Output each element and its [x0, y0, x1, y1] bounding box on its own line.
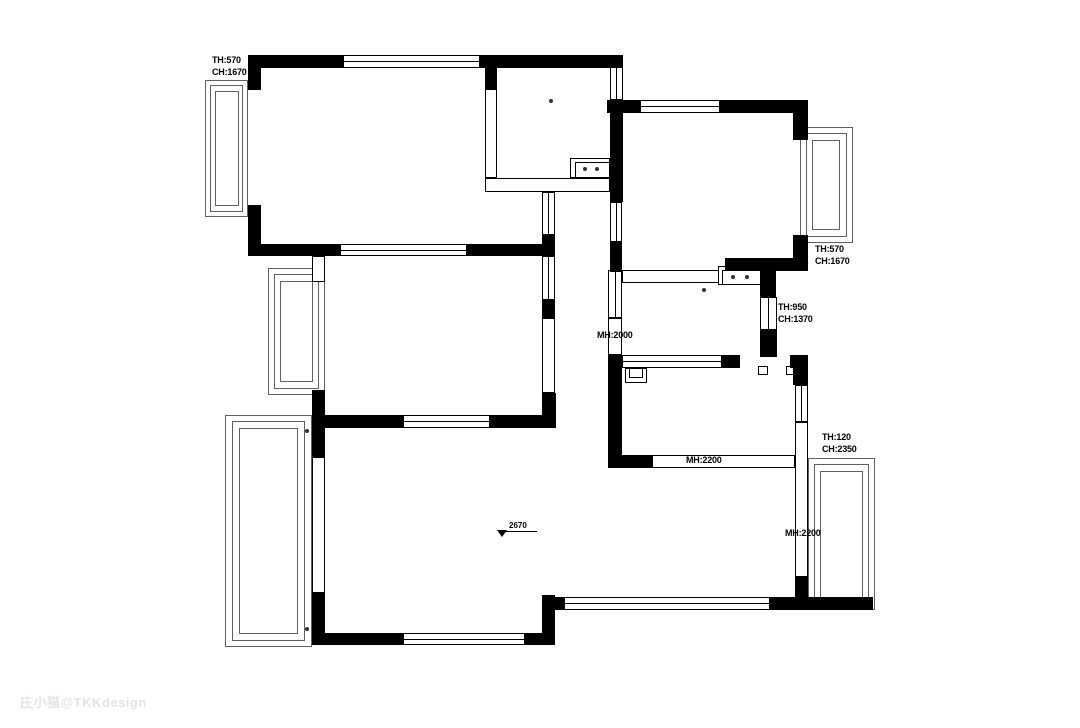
partition-outline	[312, 457, 325, 593]
wall-segment	[608, 455, 652, 468]
wall-segment	[607, 100, 640, 113]
window-segment	[622, 355, 722, 368]
level-marker-line	[501, 531, 537, 532]
window-segment	[608, 270, 622, 318]
wall-segment	[790, 355, 808, 368]
window-segment	[640, 100, 720, 113]
wall-segment	[610, 242, 622, 272]
partition-outline	[652, 455, 795, 468]
wall-segment	[312, 390, 325, 457]
wall-segment	[793, 100, 808, 140]
wall-segment	[552, 597, 565, 610]
dot-marker	[595, 167, 599, 171]
bay-window-frame	[215, 91, 239, 206]
bay-window-frame	[280, 281, 313, 382]
wall-segment	[322, 415, 403, 428]
dimension-label: TH:570CH:1670	[815, 244, 850, 267]
wall-segment	[760, 270, 776, 297]
window-segment	[340, 244, 467, 256]
dimension-label: MH:2200	[686, 455, 722, 467]
window-segment	[795, 385, 808, 422]
dimension-label: TH:570CH:1670	[212, 55, 247, 78]
window-segment	[760, 297, 777, 330]
wall-segment	[248, 55, 261, 90]
wall-segment	[248, 55, 343, 68]
window-segment	[343, 55, 480, 68]
window-segment	[403, 415, 490, 428]
window-segment	[403, 633, 525, 645]
window-segment	[542, 192, 555, 235]
window-segment	[563, 597, 770, 610]
dot-marker	[731, 275, 735, 279]
wall-segment	[608, 355, 622, 468]
dimension-label: TH:950CH:1370	[778, 302, 813, 325]
dot-marker	[305, 429, 309, 433]
dimension-label: TH:120CH:2350	[822, 432, 857, 455]
partition-outline	[485, 88, 497, 178]
dot-marker	[549, 99, 553, 103]
wall-segment	[490, 415, 556, 428]
dot-marker	[583, 167, 587, 171]
floor-plan-canvas: 庄小猫@TKKdesign TH:570CH:1670TH:570CH:1670…	[0, 0, 1080, 728]
wall-segment	[248, 244, 340, 256]
dot-marker	[702, 288, 706, 292]
wall-segment	[722, 355, 740, 368]
watermark: 庄小猫@TKKdesign	[20, 692, 147, 711]
wall-segment	[480, 55, 623, 68]
wall-segment	[312, 633, 403, 645]
wall-segment	[795, 577, 808, 610]
bay-window-frame	[239, 428, 298, 634]
dot-marker	[745, 275, 749, 279]
partition-outline	[629, 368, 643, 378]
partition-outline	[722, 270, 762, 285]
partition-outline	[575, 162, 610, 178]
partition-outline	[312, 256, 325, 282]
wall-segment	[760, 330, 777, 357]
partition-outline	[795, 422, 808, 577]
wall-segment	[542, 235, 555, 256]
wall-segment	[485, 68, 497, 90]
partition-outline	[485, 178, 610, 192]
partition-outline	[542, 318, 555, 393]
dimension-label: MH:2200	[785, 528, 821, 540]
partition-outline	[622, 270, 722, 283]
dimension-label: MH:2000	[597, 330, 633, 342]
wall-segment	[793, 368, 808, 385]
window-segment	[610, 202, 622, 242]
wall-segment	[610, 100, 623, 202]
wall-segment	[542, 300, 555, 318]
bay-window-frame	[820, 471, 863, 598]
dot-marker	[305, 627, 309, 631]
partition-outline	[758, 366, 768, 375]
window-segment	[542, 256, 555, 300]
bay-window-frame	[812, 140, 840, 230]
wall-segment	[770, 597, 873, 610]
window-segment	[610, 67, 623, 100]
level-value-label: 2670	[509, 521, 527, 530]
